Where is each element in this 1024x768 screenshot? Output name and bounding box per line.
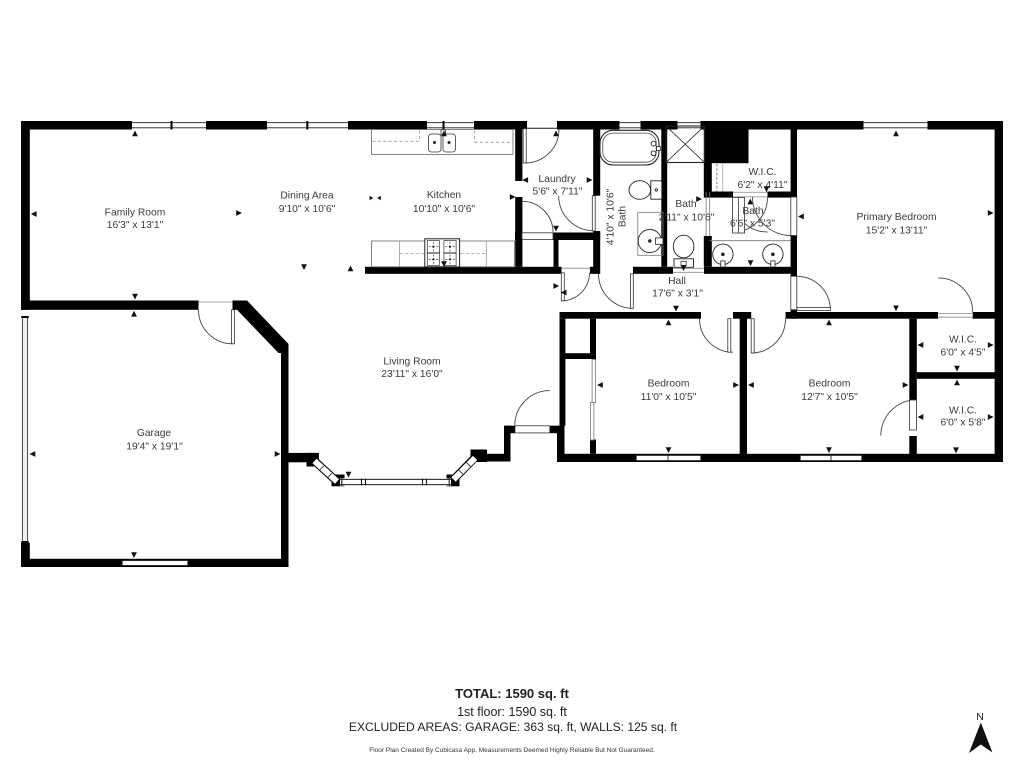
svg-text:9'10" x 10'6": 9'10" x 10'6" — [279, 204, 336, 215]
svg-text:N: N — [976, 711, 984, 723]
svg-text:10'10" x 10'6": 10'10" x 10'6" — [413, 204, 476, 215]
svg-text:11'0" x 10'5": 11'0" x 10'5" — [641, 392, 697, 403]
svg-text:Hall: Hall — [668, 276, 686, 287]
svg-text:Bedroom: Bedroom — [809, 378, 851, 389]
svg-text:19'4" x 19'1": 19'4" x 19'1" — [126, 441, 183, 452]
svg-text:Living Room: Living Room — [383, 356, 440, 367]
svg-text:W.I.C.: W.I.C. — [748, 167, 776, 178]
svg-text:15'2" x 13'11": 15'2" x 13'11" — [866, 225, 928, 236]
svg-text:Family Room: Family Room — [105, 207, 166, 218]
svg-text:EXCLUDED AREAS: GARAGE: 363 sq: EXCLUDED AREAS: GARAGE: 363 sq. ft, WALL… — [349, 720, 678, 734]
svg-text:6'2" x 4'11": 6'2" x 4'11" — [738, 180, 788, 191]
svg-text:5'6" x 7'11": 5'6" x 7'11" — [533, 186, 583, 197]
svg-text:Bath: Bath — [742, 206, 763, 217]
svg-text:6'6" x 5'3": 6'6" x 5'3" — [730, 218, 775, 229]
svg-text:W.I.C.: W.I.C. — [949, 334, 977, 345]
svg-text:Bath: Bath — [675, 199, 696, 210]
svg-text:1st floor: 1590 sq. ft: 1st floor: 1590 sq. ft — [457, 705, 567, 719]
svg-text:6'0" x 5'8": 6'0" x 5'8" — [940, 417, 985, 428]
svg-text:Bath: Bath — [618, 206, 629, 227]
svg-text:6'0" x 4'5": 6'0" x 4'5" — [940, 347, 985, 358]
svg-text:W.I.C.: W.I.C. — [949, 405, 977, 416]
svg-text:Primary Bedroom: Primary Bedroom — [856, 212, 936, 223]
svg-text:23'11" x 16'0": 23'11" x 16'0" — [381, 369, 443, 380]
svg-text:Dining Area: Dining Area — [280, 190, 334, 201]
svg-text:12'7" x 10'5": 12'7" x 10'5" — [801, 392, 858, 403]
svg-text:Floor Plan Created By Cubicasa: Floor Plan Created By Cubicasa App. Meas… — [369, 747, 655, 754]
svg-text:2'11" x 10'6": 2'11" x 10'6" — [659, 212, 715, 223]
svg-text:16'3" x 13'1": 16'3" x 13'1" — [107, 220, 164, 231]
svg-text:Laundry: Laundry — [538, 174, 576, 185]
svg-text:Bedroom: Bedroom — [648, 378, 690, 389]
svg-text:TOTAL: 1590 sq. ft: TOTAL: 1590 sq. ft — [455, 686, 569, 701]
svg-text:4'10" x 10'6": 4'10" x 10'6" — [606, 188, 617, 245]
svg-text:Garage: Garage — [137, 428, 172, 439]
svg-text:Kitchen: Kitchen — [427, 190, 462, 201]
svg-text:17'6" x 3'1": 17'6" x 3'1" — [652, 288, 703, 299]
